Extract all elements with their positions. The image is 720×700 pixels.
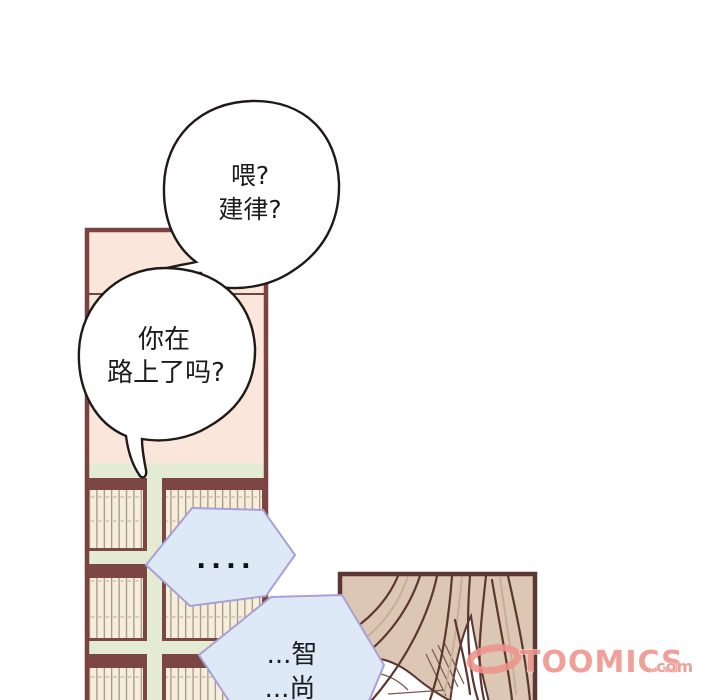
thought-hexagon-2-line2: ...尚: [265, 674, 316, 700]
comic-page-canvas: 喂? 建律? 你在 路上了吗? .... ...智 ...尚 TOOMICS .…: [0, 0, 720, 700]
book-row: [89, 490, 143, 548]
thought-hexagon-2-line1: ...智: [267, 640, 318, 670]
speech-bubble-2-line2: 路上了吗?: [107, 358, 225, 388]
watermark-suffix-text: .com: [650, 657, 693, 676]
shelf-board-top: [89, 463, 264, 478]
speech-bubble-2-line1: 你在: [138, 325, 190, 355]
speech-bubble-1-line1: 喂?: [231, 161, 269, 190]
book-row: [89, 668, 143, 700]
shelf-divider: [147, 470, 162, 700]
book-row: [89, 578, 143, 638]
thought-hexagon-1-text: ....: [196, 545, 256, 575]
speech-bubble-1-line2: 建律?: [218, 195, 281, 224]
